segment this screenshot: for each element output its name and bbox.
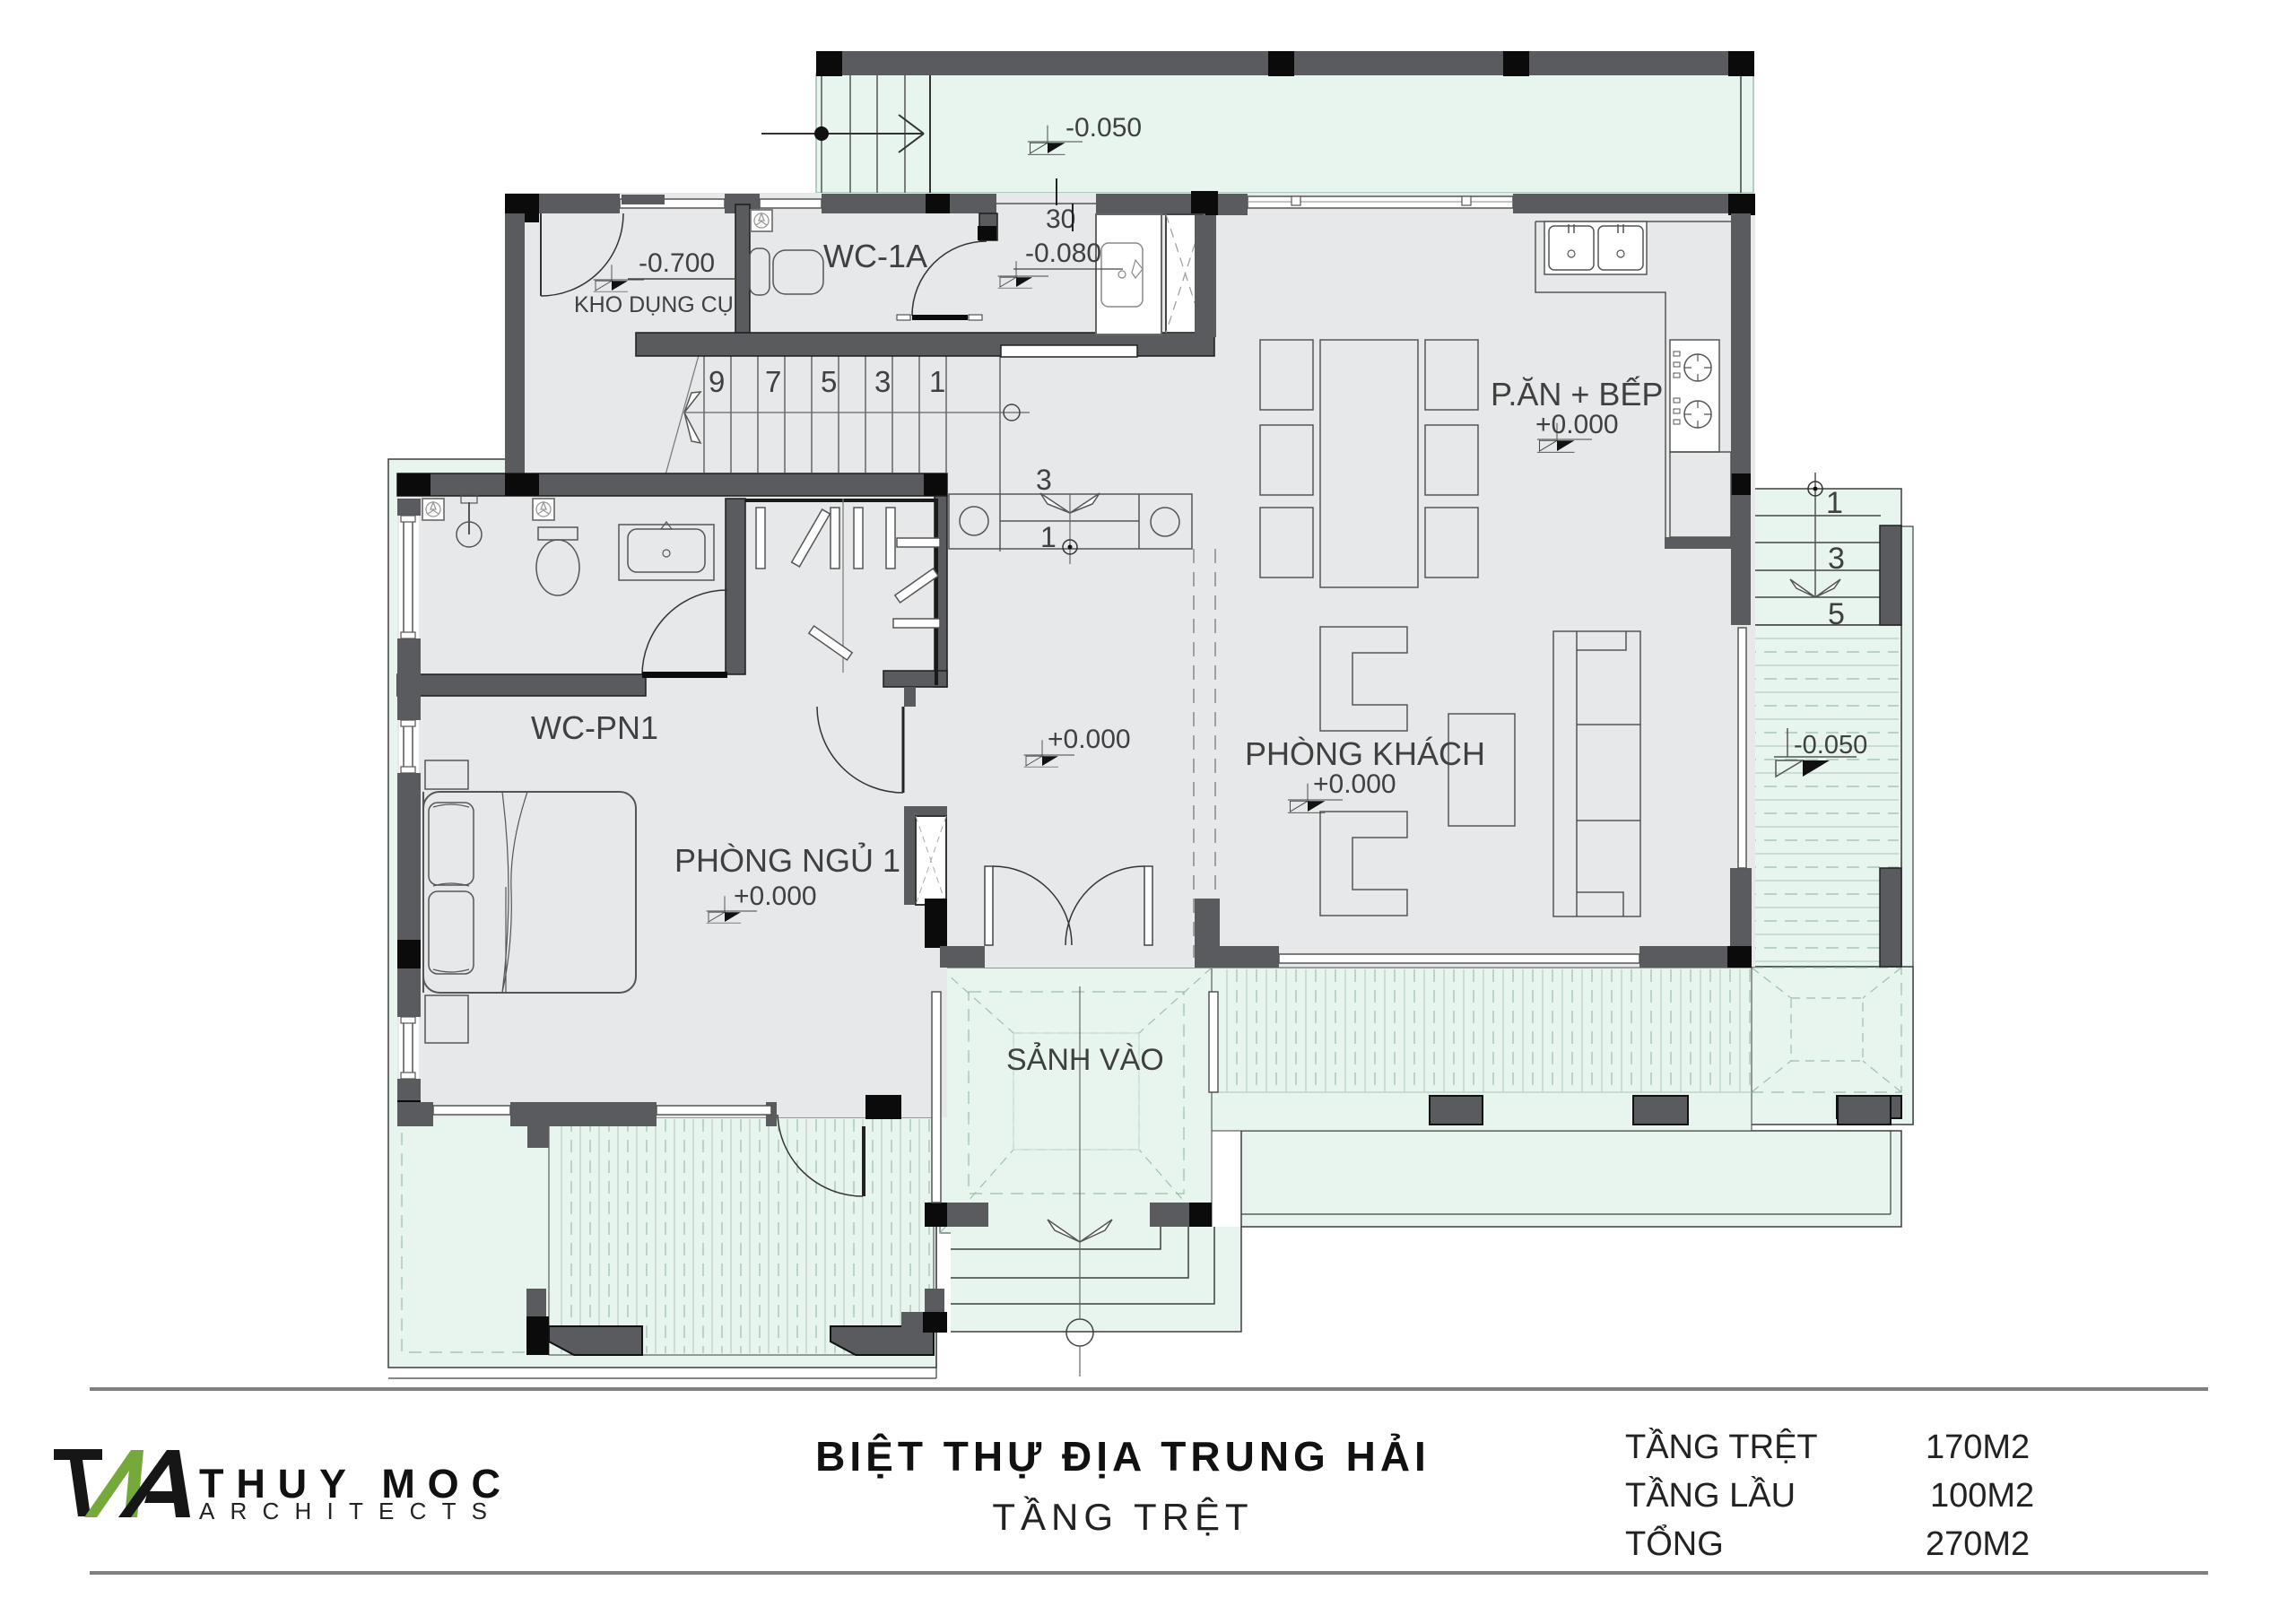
- svg-text:270M2: 270M2: [1926, 1525, 2030, 1563]
- svg-text:WC-1A: WC-1A: [823, 238, 927, 274]
- svg-text:7: 7: [765, 365, 781, 398]
- svg-text:TẦNG TRỆT: TẦNG TRỆT: [1625, 1427, 1818, 1466]
- svg-text:-0.050: -0.050: [1065, 113, 1142, 143]
- svg-text:-0.700: -0.700: [639, 248, 715, 278]
- svg-text:+0.000: +0.000: [1535, 410, 1619, 439]
- svg-text:PHÒNG KHÁCH: PHÒNG KHÁCH: [1245, 735, 1485, 772]
- svg-text:1: 1: [1040, 521, 1057, 553]
- svg-text:TẦNG LẦU: TẦNG LẦU: [1625, 1475, 1796, 1515]
- svg-text:TỔNG: TỔNG: [1625, 1523, 1724, 1563]
- svg-text:BIỆT THỰ ĐỊA TRUNG HẢI: BIỆT THỰ ĐỊA TRUNG HẢI: [815, 1433, 1431, 1480]
- svg-text:SẢNH VÀO: SẢNH VÀO: [1006, 1043, 1164, 1077]
- svg-text:9: 9: [709, 365, 725, 398]
- svg-text:3: 3: [1036, 464, 1052, 496]
- svg-text:+0.000: +0.000: [1048, 725, 1131, 754]
- svg-text:P.ĂN + BẾP: P.ĂN + BẾP: [1491, 376, 1663, 413]
- svg-text:KHO DỤNG CỤ: KHO DỤNG CỤ: [574, 292, 734, 317]
- svg-text:5: 5: [821, 365, 837, 398]
- svg-text:ARCHITECTS: ARCHITECTS: [199, 1498, 497, 1524]
- svg-text:WC-PN1: WC-PN1: [531, 709, 658, 746]
- svg-text:-0.050: -0.050: [1794, 731, 1867, 760]
- svg-text:3: 3: [874, 365, 891, 398]
- svg-text:1: 1: [1826, 486, 1843, 520]
- svg-text:30: 30: [1046, 204, 1075, 234]
- svg-text:+0.000: +0.000: [734, 881, 817, 911]
- svg-text:-0.080: -0.080: [1025, 239, 1101, 268]
- svg-text:3: 3: [1828, 542, 1845, 576]
- svg-text:TẦNG TRỆT: TẦNG TRỆT: [992, 1496, 1253, 1538]
- svg-text:100M2: 100M2: [1930, 1477, 2034, 1515]
- svg-text:170M2: 170M2: [1926, 1429, 2030, 1466]
- svg-text:PHÒNG NGỦ 1: PHÒNG NGỦ 1: [674, 841, 900, 879]
- svg-text:1: 1: [929, 365, 945, 398]
- svg-text:+0.000: +0.000: [1313, 769, 1396, 799]
